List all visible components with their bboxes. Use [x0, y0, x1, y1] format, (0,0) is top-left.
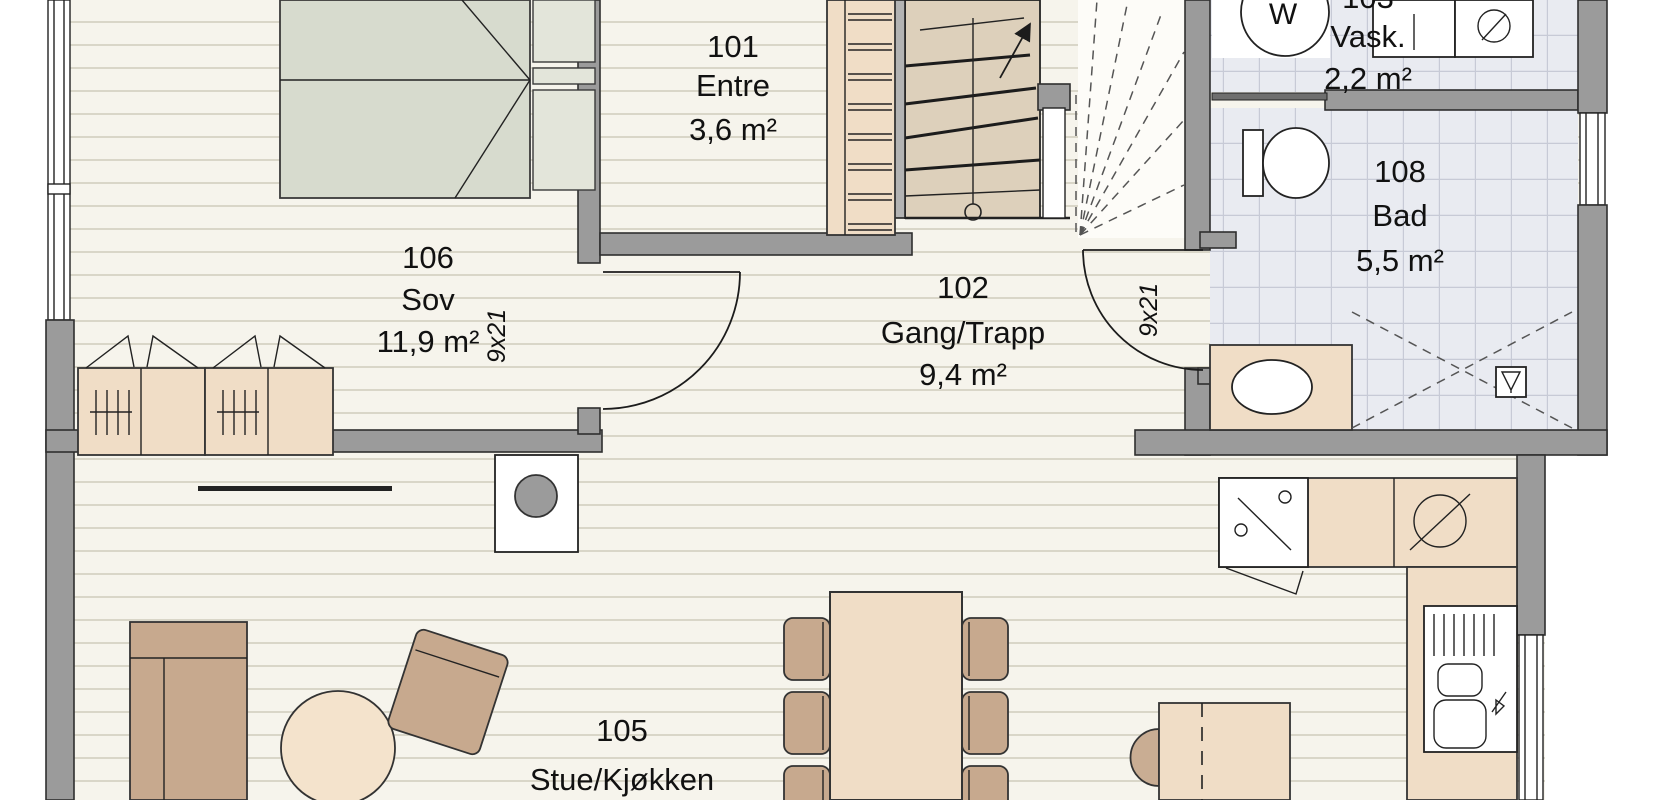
round-side-table: [281, 691, 395, 800]
bed: [280, 0, 595, 198]
room-area: 5,5 m²: [1356, 243, 1444, 278]
room-number: 102: [937, 270, 989, 305]
outside-right-bottom: [1545, 455, 1670, 800]
dining-chair: [784, 766, 830, 800]
kitchen-sink-icon: [1424, 606, 1517, 752]
stue-right-wall: [1517, 455, 1545, 635]
entre-closet: [827, 0, 895, 235]
tv-bench: [198, 486, 392, 491]
stair-east-wall: [1043, 108, 1065, 218]
room-number: 106: [402, 240, 454, 275]
bad-door-jamb-top: [1200, 232, 1236, 248]
room-number: 103: [1342, 0, 1394, 15]
sov-door-size: 9x21: [483, 309, 511, 363]
room-name: Sov: [401, 282, 455, 317]
floor-plan-svg: W: [0, 0, 1670, 800]
right-wall-upper: [1578, 0, 1607, 113]
bed-pillow: [533, 68, 595, 84]
bad-west-wall-upper: [1185, 0, 1210, 250]
room-name: Bad: [1372, 198, 1427, 233]
room-area: 3,6 m²: [689, 112, 777, 147]
toilet-icon: [1243, 128, 1329, 198]
left-window: [48, 0, 70, 320]
bad-door-size: 9x21: [1135, 283, 1163, 337]
outside-left: [0, 0, 48, 800]
bathroom-vanity: [1210, 345, 1352, 430]
floor-plan-image: W: [0, 0, 1670, 800]
room-area: 34,3 m²: [569, 794, 674, 800]
bad-south-wall: [1135, 430, 1607, 455]
dining-chair: [784, 692, 830, 754]
vask-door: [1212, 93, 1327, 100]
room-name: Entre: [696, 68, 770, 103]
right-wall-mid: [1578, 205, 1607, 455]
room-area: 9,4 m²: [919, 357, 1007, 392]
vask-sink: [1455, 0, 1533, 57]
left-wall: [46, 320, 74, 800]
room-area: 2,2 m²: [1324, 61, 1412, 96]
dining-chair: [962, 618, 1008, 680]
dining-chair: [784, 618, 830, 680]
dining-chair: [962, 766, 1008, 800]
bed-pillow: [533, 90, 595, 190]
room-name: Gang/Trapp: [881, 315, 1045, 350]
stair-east-jamb: [1038, 84, 1070, 110]
dining-table: [830, 592, 962, 800]
room-name: Stue/Kjøkken: [530, 762, 714, 797]
dining-set: [784, 592, 1008, 800]
bad-window: [1580, 113, 1605, 205]
washing-machine-label: W: [1269, 0, 1298, 31]
bed-pillow: [533, 0, 595, 62]
dining-chair: [962, 692, 1008, 754]
room-number: 105: [596, 713, 648, 748]
entre-south-wall: [600, 233, 912, 255]
stue-window: [1519, 635, 1543, 800]
sofa: [130, 622, 247, 800]
stair-void-hatch: [1076, 0, 1185, 238]
room-name: Vask.: [1330, 19, 1405, 54]
fireplace: [495, 455, 578, 552]
room-number: 101: [707, 29, 759, 64]
room-area: 11,9 m²: [377, 324, 480, 359]
room-number: 108: [1374, 154, 1426, 189]
sov-door-jamb: [578, 408, 600, 434]
